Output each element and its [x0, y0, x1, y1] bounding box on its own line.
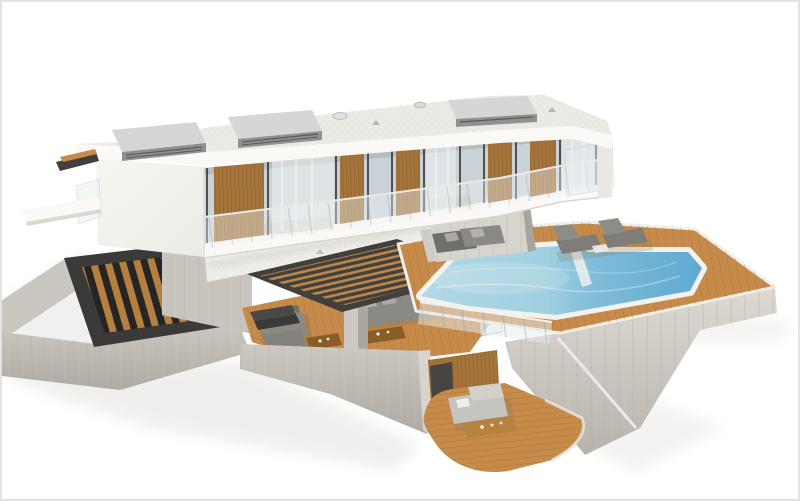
table-dish [491, 424, 494, 427]
vent-cap [415, 102, 426, 108]
table-dish [318, 339, 321, 342]
table-dish [480, 425, 484, 429]
roof-vent-box-c [448, 96, 537, 127]
front-left-wall [96, 158, 204, 257]
table-dish [327, 338, 330, 341]
pool-highlight [430, 262, 570, 294]
table-dish [500, 422, 503, 425]
render-canvas [0, 0, 800, 501]
vent-cap [333, 113, 347, 120]
left-balcony [22, 179, 101, 226]
table-dish [376, 332, 379, 335]
table-dish [387, 331, 390, 334]
house-render-illustration [2, 2, 798, 499]
